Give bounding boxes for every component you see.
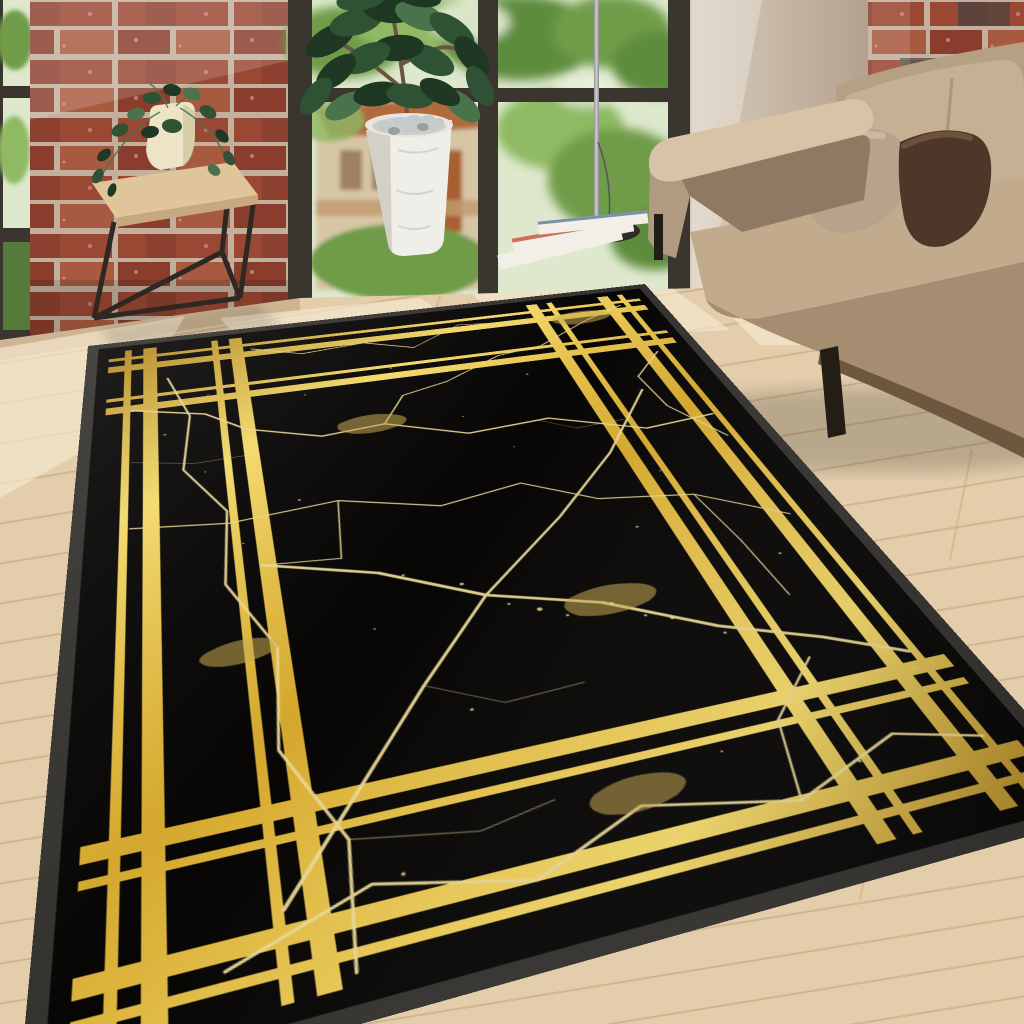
living-room-photo bbox=[0, 0, 1024, 1024]
sofa-leg-rear bbox=[654, 214, 663, 260]
